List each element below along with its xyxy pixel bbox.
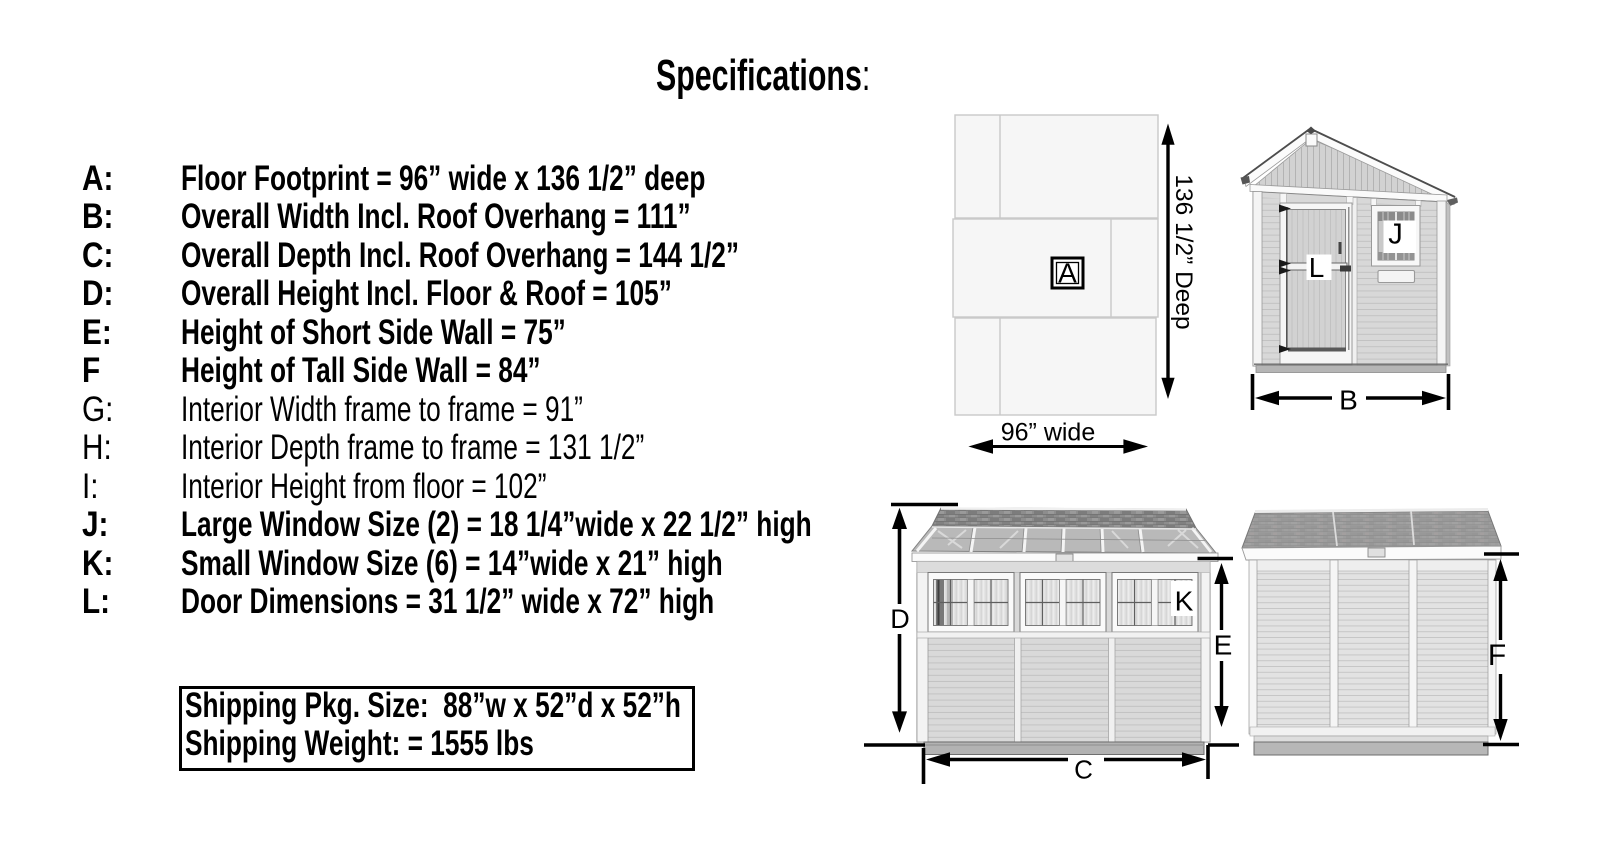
svg-text:L: L <box>1309 252 1325 283</box>
svg-text:B: B <box>1339 385 1358 416</box>
svg-text:A: A <box>1058 258 1077 289</box>
svg-text:F: F <box>1488 639 1506 672</box>
svg-text:K: K <box>1175 586 1194 617</box>
svg-text:E: E <box>1214 630 1233 661</box>
svg-text:C: C <box>1074 755 1093 785</box>
svg-text:D: D <box>890 604 910 634</box>
svg-text:J: J <box>1388 219 1403 251</box>
svg-text:136 1/2” Deep: 136 1/2” Deep <box>1170 174 1197 329</box>
svg-text:96” wide: 96” wide <box>1001 419 1096 447</box>
